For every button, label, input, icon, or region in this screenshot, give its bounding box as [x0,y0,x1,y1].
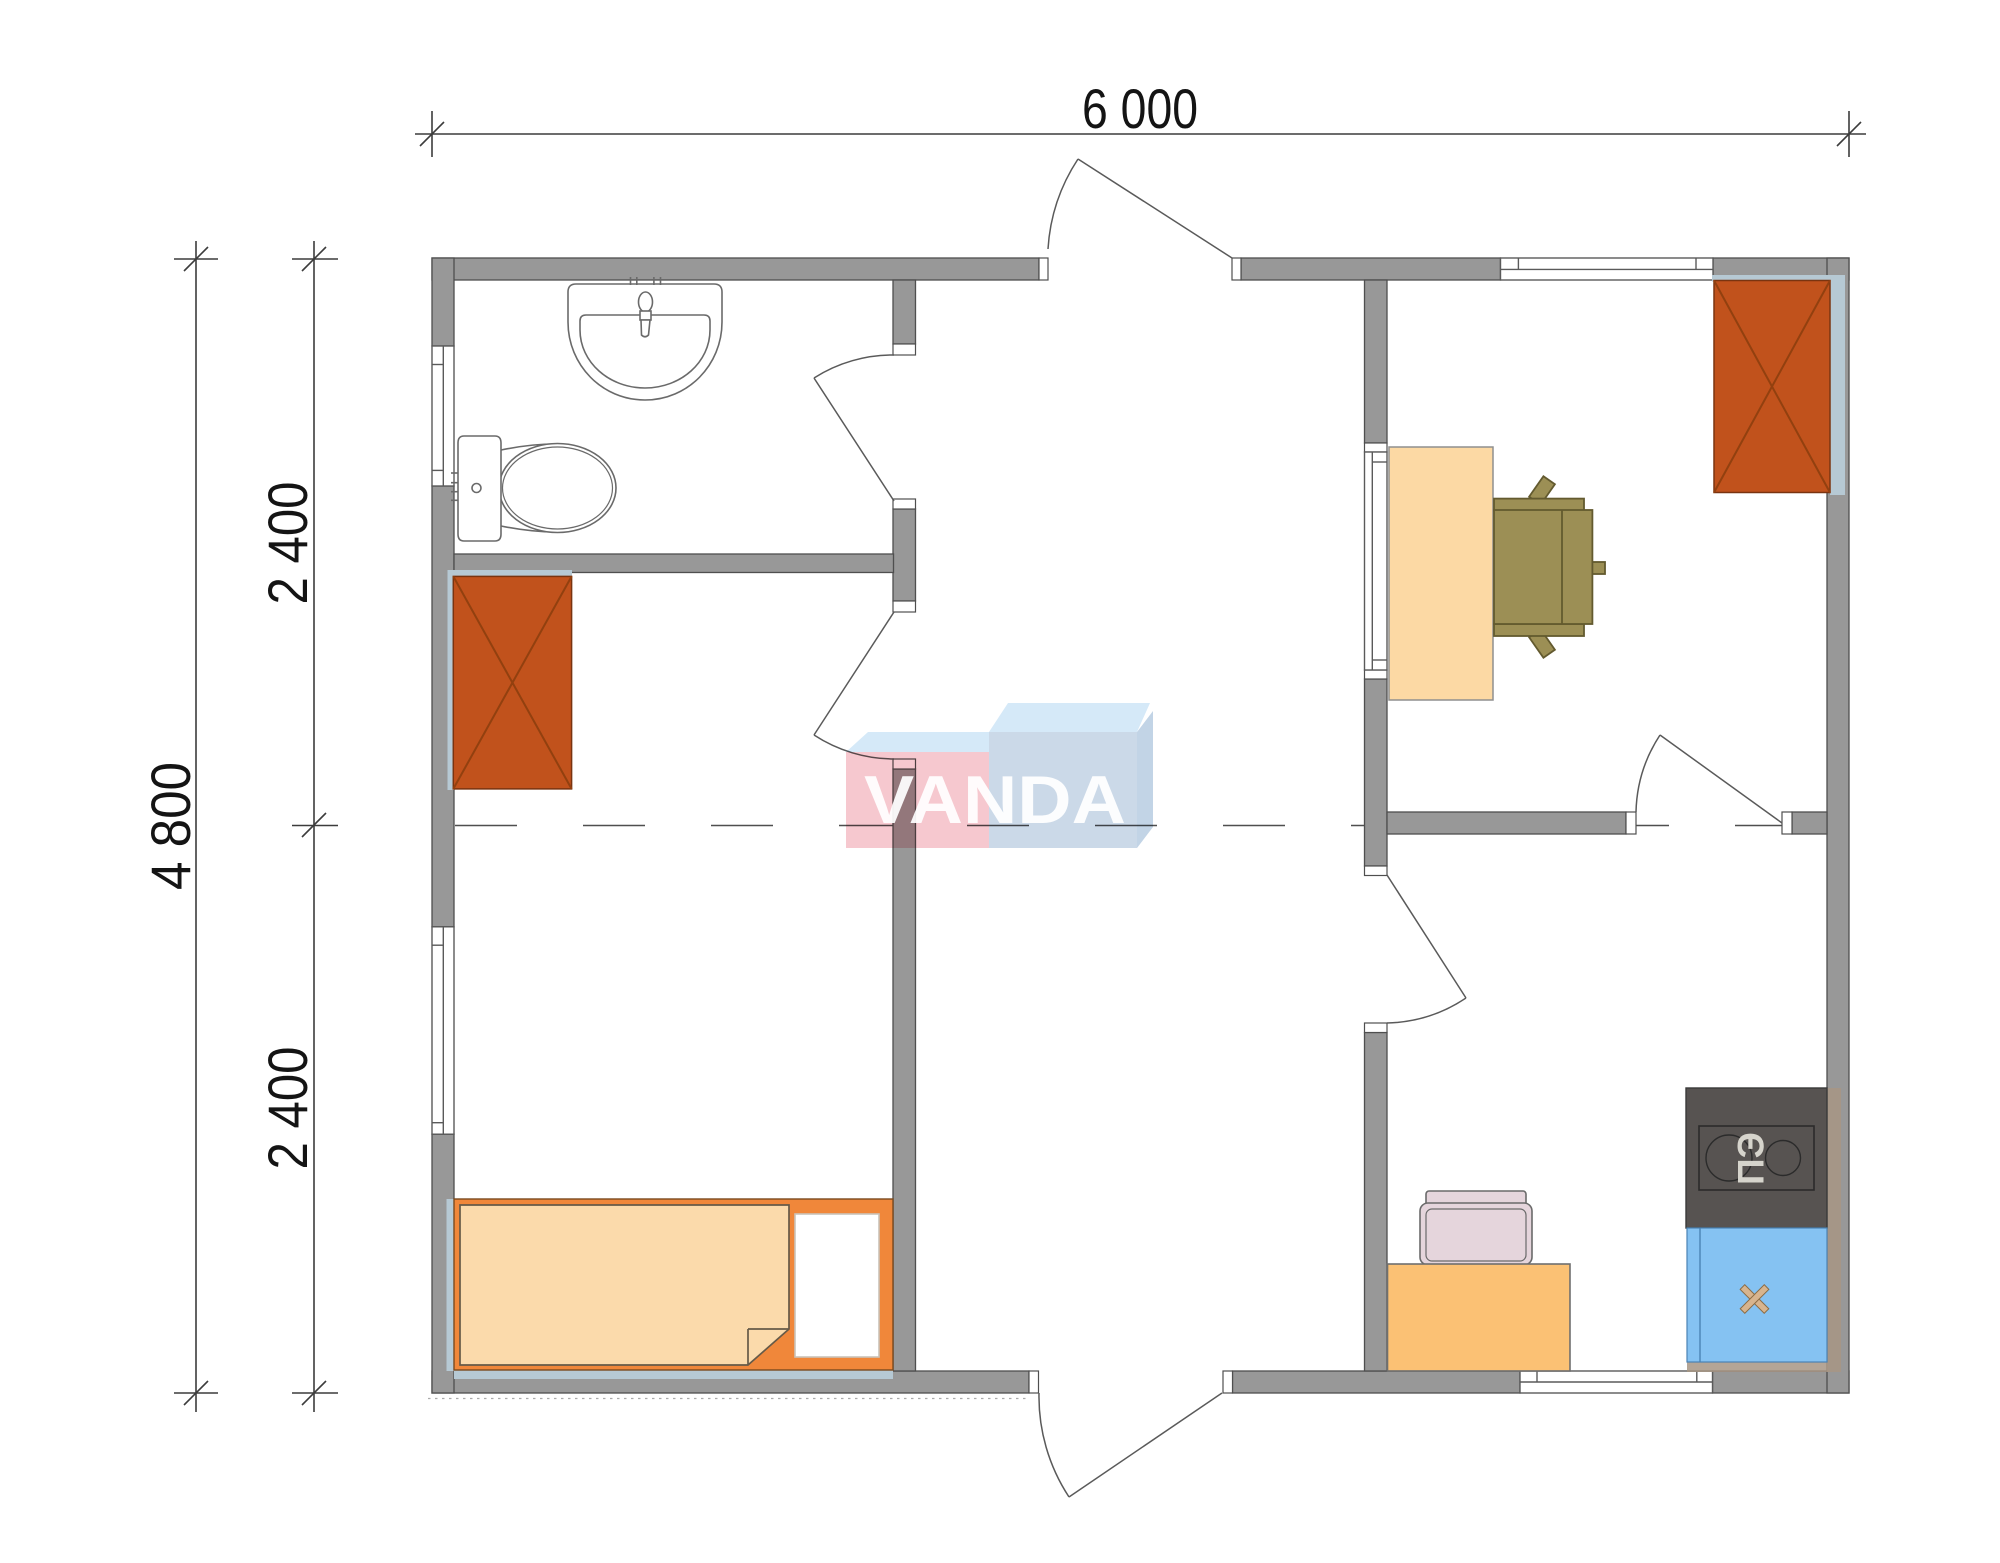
svg-text:ПЭ: ПЭ [1730,1132,1771,1185]
svg-text:VANDA: VANDA [864,762,1126,838]
svg-text:2 400: 2 400 [256,1047,319,1170]
svg-text:6 000: 6 000 [1082,77,1198,140]
svg-text:2 400: 2 400 [256,482,319,605]
svg-text:4 800: 4 800 [139,762,202,890]
